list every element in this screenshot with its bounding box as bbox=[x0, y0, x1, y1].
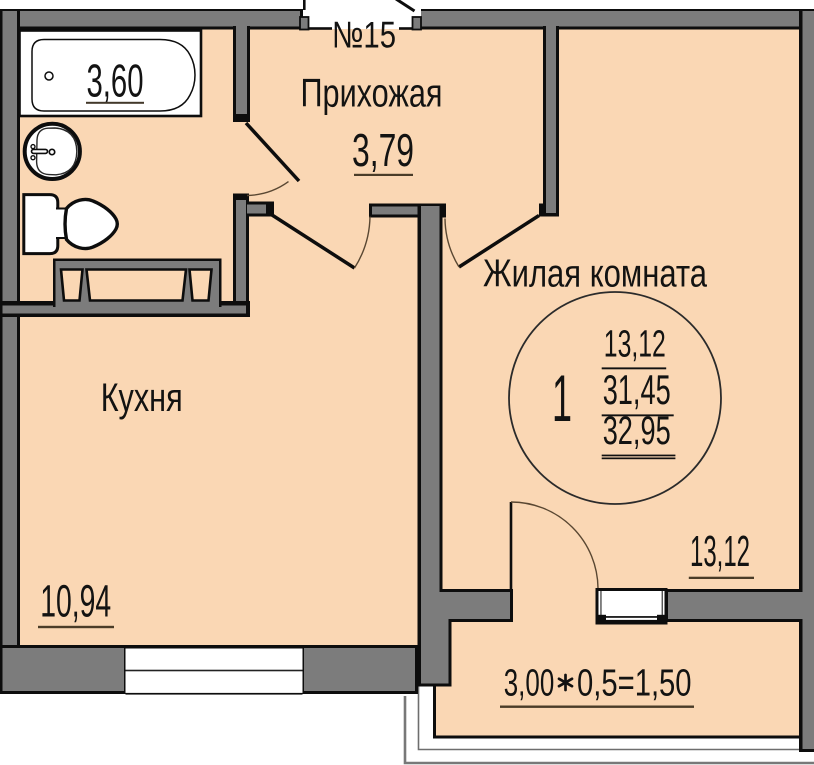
svg-text:10,94: 10,94 bbox=[40, 576, 111, 627]
svg-text:31,45: 31,45 bbox=[603, 367, 671, 413]
svg-text:13,12: 13,12 bbox=[690, 528, 750, 576]
svg-text:13,12: 13,12 bbox=[604, 322, 666, 365]
svg-text:Кухня: Кухня bbox=[101, 376, 183, 420]
svg-text:Жилая комната: Жилая комната bbox=[483, 253, 707, 296]
svg-text:3,79: 3,79 bbox=[352, 124, 414, 176]
svg-text:0,5=1,50: 0,5=1,50 bbox=[577, 662, 692, 704]
svg-text:1: 1 bbox=[552, 362, 572, 435]
svg-text:32,95: 32,95 bbox=[603, 409, 671, 453]
svg-text:3,00: 3,00 bbox=[504, 662, 555, 704]
svg-text:3,60: 3,60 bbox=[87, 55, 144, 107]
svg-text:Прихожая: Прихожая bbox=[301, 72, 443, 116]
svg-text:№15: №15 bbox=[332, 14, 396, 56]
